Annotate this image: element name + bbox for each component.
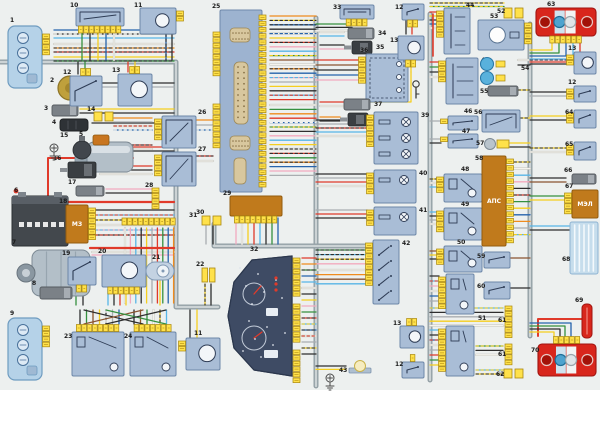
component-number-label: 13 <box>568 45 576 52</box>
component-number-label: 12 <box>395 361 403 368</box>
component-number-label: 54 <box>521 65 529 72</box>
component-number-label: 13 <box>393 320 401 327</box>
component-number-label: 27 <box>198 146 206 153</box>
component-number-label: 61 <box>498 351 506 358</box>
component-number-label: 19 <box>62 250 70 257</box>
component-number-label: 62 <box>496 371 504 378</box>
component-number-label: 36 <box>360 47 368 54</box>
component-number-label: 31 <box>189 212 197 219</box>
component-number-label: 12 <box>568 79 576 86</box>
component-number-label: 43 <box>339 367 347 374</box>
component-number-label: 55 <box>480 88 488 95</box>
component-number-label: 12 <box>395 4 403 11</box>
component-number-label: 51 <box>478 315 486 322</box>
component-number-label: 35 <box>376 44 384 51</box>
component-number-label: 69 <box>575 297 583 304</box>
component-number-label: 44 <box>466 2 474 9</box>
component-number-label: 25 <box>212 3 220 10</box>
component-door-block-door-block <box>439 326 475 376</box>
component-number-label: 11 <box>134 2 142 9</box>
component-number-label: 48 <box>461 166 469 173</box>
component-number-label: 14 <box>87 106 95 113</box>
component-number-label: 50 <box>457 239 465 246</box>
component-number-label: 13 <box>390 37 398 44</box>
component-number-label: 22 <box>196 261 204 268</box>
component-number-label: 67 <box>565 183 573 190</box>
component-number-label: 9 <box>10 310 14 317</box>
component-number-label: 65 <box>565 141 573 148</box>
component-number-label: 59 <box>477 253 485 260</box>
component-number-label: 12 <box>63 69 71 76</box>
component-55-sensor-small: 55 <box>480 86 518 96</box>
component-number-label: 46 <box>464 108 472 115</box>
component-number-label: 49 <box>461 201 469 208</box>
component-number-label: 4 <box>52 119 56 126</box>
component-number-label: 23 <box>64 333 72 340</box>
wiring-diagram: 1234567891011121314151617МЗ1819202122232… <box>0 0 600 423</box>
component-number-label: 63 <box>547 1 555 8</box>
component-number-label: 33 <box>333 4 341 11</box>
svg-text:АПС: АПС <box>487 198 502 205</box>
component-number-label: 11 <box>194 330 202 337</box>
component-number-label: 8 <box>32 280 36 287</box>
component-number-label: 70 <box>531 347 539 354</box>
component-6-battery: 6 <box>12 187 68 246</box>
diagram-canvas: 1234567891011121314151617МЗ1819202122232… <box>0 0 600 423</box>
component-number-label: 13 <box>112 67 120 74</box>
component-number-label: 1 <box>10 17 14 24</box>
component-number-label: 32 <box>250 246 258 253</box>
component-number-label: 3 <box>44 105 48 112</box>
component-number-label: 34 <box>378 30 386 37</box>
component-23-door-block: 23 <box>64 325 124 377</box>
svg-text:МЭЛ: МЭЛ <box>577 201 592 208</box>
component-number-label: 57 <box>476 140 484 147</box>
component-25-ecu: 25 <box>212 3 266 192</box>
component-number-label: 6 <box>14 187 18 194</box>
component-number-label: 47 <box>462 128 470 135</box>
component-number-label: 21 <box>152 254 160 261</box>
component-number-label: 58 <box>475 155 483 162</box>
component-number-label: 20 <box>98 248 106 255</box>
component-number-label: 61 <box>498 317 506 324</box>
component-number-label: 42 <box>402 240 410 247</box>
component-number-label: 7 <box>12 239 16 246</box>
component-24-door-block: 24 <box>124 325 176 377</box>
component-62-conn2: 62 <box>496 369 523 378</box>
component-20-blue-box: 20 <box>98 248 146 294</box>
component-number-label: 40 <box>419 170 427 177</box>
component-number-label: 60 <box>477 283 485 290</box>
component-number-label: 29 <box>223 190 231 197</box>
component-number-label: 2 <box>50 77 54 84</box>
component-number-label: 53 <box>490 13 498 20</box>
component-number-label: 56 <box>474 109 482 116</box>
component-number-label: 28 <box>145 182 153 189</box>
component-number-label: 41 <box>419 207 427 214</box>
component-number-label: 68 <box>562 256 570 263</box>
component-number-label: 24 <box>124 333 132 340</box>
component-number-label: 15 <box>60 132 68 139</box>
component-number-label: 37 <box>374 101 382 108</box>
svg-text:МЗ: МЗ <box>72 221 82 228</box>
component-number-label: 64 <box>565 109 573 116</box>
component-number-label: 26 <box>198 109 206 116</box>
component-number-label: 66 <box>564 167 572 174</box>
component-number-label: 17 <box>68 179 76 186</box>
component-number-label: 18 <box>59 198 67 205</box>
component-number-label: 39 <box>421 112 429 119</box>
component-number-label: 10 <box>70 2 78 9</box>
